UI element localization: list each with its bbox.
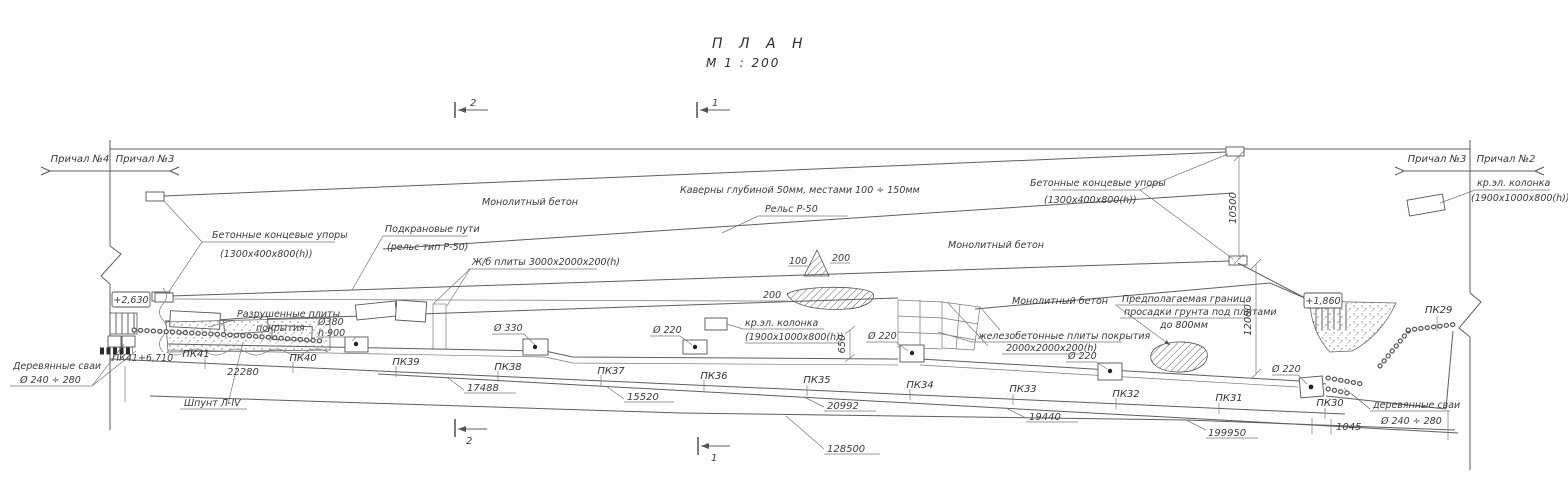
station-pk31: ПК31 — [1215, 393, 1242, 404]
berth-label-3-left: Причал №3 — [116, 154, 175, 165]
dim-199950: 199950 — [1208, 428, 1246, 439]
cavity-100-label: 100 — [789, 256, 807, 267]
station-pk34: ПК34 — [906, 380, 933, 391]
section-marks: 2 1 2 1 — [455, 98, 730, 464]
dim-22280: 22280 — [227, 367, 259, 378]
station-pk39: ПК39 — [392, 357, 419, 368]
berth-label-3-right: Причал №3 — [1408, 154, 1467, 165]
elevation-right: +1,860 — [1305, 296, 1340, 307]
subsidence-patch — [1151, 342, 1208, 372]
slab-ramp — [433, 269, 470, 350]
station-pk41-offset: ПК41+6,710 — [112, 353, 173, 364]
dimension-chains: ПК41 ПК40 ПК39 ПК38 ПК37 ПК36 ПК35 ПК34 … — [110, 259, 1458, 455]
crane-column-mid — [705, 318, 727, 330]
drawing-canvas: П Л А Н М 1 : 200 Причал №4 Причал №3 Пр… — [0, 0, 1568, 500]
station-pk36: ПК36 — [700, 371, 727, 382]
quay-deck: Ж/б плиты 3000x2000x200(h) Разрушенные п… — [155, 250, 1326, 398]
cavity-mound — [804, 250, 829, 276]
crane-rail-system: Бетонные концевые упоры (1300x400x800(h)… — [146, 147, 1568, 301]
dim-10500: 10500 — [1228, 192, 1239, 224]
end-stops-right-label: Бетонные концевые упоры — [1030, 178, 1166, 189]
crane-rails-label: Подкрановые пути — [385, 224, 480, 235]
dim-12000: 12000 — [1243, 304, 1254, 336]
monolithic-concrete-2: Монолитный бетон — [948, 240, 1044, 251]
monolithic-concrete-3: Монолитный бетон — [1012, 296, 1108, 307]
bollard-330-label: Ø 330 — [493, 323, 523, 334]
bollard-220-label-a: Ø 220 — [652, 325, 682, 336]
dim-128500: 128500 — [827, 444, 865, 455]
section-1-bottom: 1 — [711, 453, 717, 464]
plan-drawing: П Л А Н М 1 : 200 Причал №4 Причал №3 Пр… — [0, 0, 1568, 500]
cavity-200-label: 200 — [832, 253, 850, 264]
station-pk41: ПК41 — [182, 349, 209, 360]
station-pk40: ПК40 — [289, 353, 316, 364]
dim-650: 650 — [837, 334, 848, 353]
section-1-top: 1 — [712, 98, 718, 109]
rail-p50-label: Рельс Р-50 — [765, 204, 818, 215]
elevation-left: +2,630 — [113, 295, 148, 306]
station-pk32: ПК32 — [1112, 389, 1139, 400]
wood-piles-right-label: деревянные сваи — [1372, 400, 1460, 411]
station-pk29: ПК29 — [1425, 305, 1452, 316]
wood-piles-left-label: Деревянные сваи — [12, 361, 101, 372]
station-pk35: ПК35 — [803, 375, 830, 386]
bollard-220-label-d: Ø 220 — [1271, 364, 1301, 375]
berth-label-4: Причал №4 — [51, 154, 110, 165]
dim-17488: 17488 — [467, 383, 499, 394]
end-stops-left-label: Бетонные концевые упоры — [212, 230, 348, 241]
drawing-scale: М 1 : 200 — [706, 56, 780, 70]
dim-15520: 15520 — [627, 392, 659, 403]
wood-piles-right-dia: Ø 240 ÷ 280 — [1380, 416, 1442, 427]
crane-column-right — [1407, 194, 1445, 216]
left-end-detail: +2,630 Деревянные сваи Ø 240 ÷ 280 ПК41+… — [10, 288, 330, 409]
station-pk30: ПК30 — [1316, 398, 1343, 409]
caverns-note: Каверны глубиной 50мм, местами 100 ÷ 150… — [680, 185, 920, 196]
subsidence-label3: до 800мм — [1159, 320, 1208, 331]
sheet-pile-label: Шпунт Л-IV — [184, 398, 242, 409]
cavity-patch-1 — [787, 287, 874, 309]
column-right-size: (1900x1000x800(h)) — [1471, 193, 1568, 204]
end-stop-right-top — [1226, 147, 1244, 156]
slabs-label: Ж/б плиты 3000x2000x200(h) — [471, 257, 620, 268]
column-right-label: кр.эл. колонка — [1477, 178, 1550, 189]
bollard-220-label-b: Ø 220 — [867, 331, 897, 342]
cavity-marker — [155, 293, 173, 302]
station-pk38: ПК38 — [494, 362, 521, 373]
cavity-200b-label: 200 — [763, 290, 781, 301]
slab-grid — [898, 300, 1000, 350]
end-stops-right-size: (1300x400x800(h)) — [1044, 195, 1137, 206]
subsidence-label1: Предполагаемая граница — [1122, 294, 1252, 305]
column-mid-label: кр.эл. колонка — [745, 318, 818, 329]
section-2-top: 2 — [470, 98, 476, 109]
monolithic-concrete-1: Монолитный бетон — [482, 197, 578, 208]
wood-piles-left-dia: Ø 240 ÷ 280 — [19, 375, 81, 386]
section-2-bottom: 2 — [466, 436, 472, 447]
title-block: П Л А Н М 1 : 200 — [706, 36, 809, 70]
rc-slabs-size: 2000x2000x200(h) — [1006, 343, 1097, 354]
berth-label-2: Причал №2 — [1477, 154, 1536, 165]
station-pk33: ПК33 — [1009, 384, 1036, 395]
end-stop-left-top — [146, 192, 164, 201]
crane-rails-type: (рельс тип Р-50) — [387, 242, 468, 253]
dim-20992: 20992 — [827, 401, 859, 412]
end-stops-left-size: (1300x400x800(h)) — [220, 249, 313, 260]
drawing-title: П Л А Н — [712, 36, 809, 52]
rc-slabs-label: железобетонные плиты покрытия — [977, 331, 1151, 342]
dim-19440: 19440 — [1029, 412, 1061, 423]
station-pk37: ПК37 — [597, 366, 625, 377]
column-mid-size: (1900x1000x800(h)) — [745, 332, 844, 343]
dim-1045: 1045 — [1336, 422, 1361, 433]
end-stop-right-bottom — [1229, 256, 1247, 265]
